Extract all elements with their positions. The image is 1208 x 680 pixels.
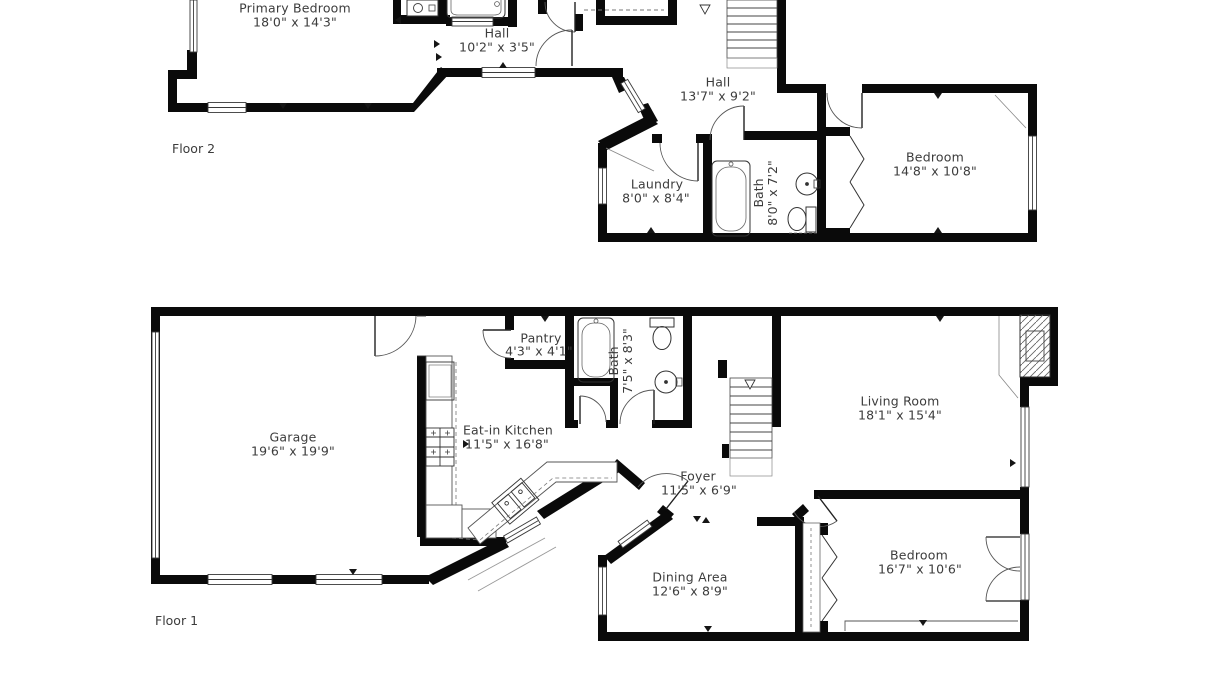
stairs-down-icon [730, 378, 772, 476]
bathroom-vanity-sink-icon [407, 0, 438, 16]
window [208, 103, 246, 113]
room-label-bath-floor2: Bath 8'0" x 7'2" [752, 160, 780, 226]
room-dims-bedroom-floor2: 14'8" x 10'8" [893, 165, 977, 178]
room-dims-garage: 19'6" x 19'9" [251, 445, 335, 458]
room-label-hall-main: Hall [706, 76, 731, 89]
window [1029, 136, 1037, 210]
door [620, 390, 654, 424]
window [482, 68, 535, 78]
window [190, 0, 197, 52]
window [316, 575, 382, 585]
window [1021, 407, 1029, 487]
kitchen-peninsula-counter [468, 462, 617, 544]
door [710, 106, 744, 140]
floor1-label: Floor 1 [155, 613, 198, 628]
window [599, 168, 607, 204]
bathtub-icon [447, 0, 505, 18]
floor1-plan [151, 307, 1058, 641]
toilet-icon [788, 207, 817, 233]
base-cabinet [426, 505, 462, 538]
bathtub-icon [712, 161, 750, 236]
bifold-closet-door [850, 136, 864, 228]
floor2-doors [536, 2, 864, 228]
hall-closet [803, 523, 820, 632]
door [375, 316, 416, 356]
room-label-foyer: Foyer [680, 470, 716, 483]
door [545, 2, 575, 32]
window [599, 567, 607, 615]
stairs-up-icon [700, 0, 777, 68]
room-dims-hall-main: 13'7" x 9'2" [680, 90, 756, 103]
room-label-laundry: Laundry [631, 178, 683, 191]
room-dims-foyer: 11'5" x 6'9" [661, 484, 737, 497]
laundry-shelf-line [606, 148, 654, 171]
stove-icon [426, 428, 454, 466]
door [536, 30, 572, 66]
window [152, 332, 159, 558]
room-label-hall-upper: Hall [485, 27, 510, 40]
room-dims: 7'5" x 8'3" [621, 328, 635, 394]
room-dims-kitchen: 11'5" x 16'8" [465, 438, 549, 451]
door [580, 396, 606, 424]
floorplan-drawing [0, 0, 1208, 680]
ceiling-break-line [995, 95, 1026, 128]
toilet-icon [650, 318, 674, 350]
window [1021, 534, 1029, 600]
floor2-markers [279, 16, 942, 233]
room-label-primary-bedroom: Primary Bedroom [239, 2, 351, 15]
room-dims-hall-upper: 10'2" x 3'5" [459, 41, 535, 54]
room-label-bath-floor1: Bath 7'5" x 8'3" [607, 328, 635, 394]
floor2-plan [168, 0, 1037, 242]
door [827, 93, 862, 128]
room-dims-living-room: 18'1" x 15'4" [858, 409, 942, 422]
window [504, 517, 541, 543]
floor2-label: Floor 2 [172, 141, 215, 156]
room-dims-bedroom-floor1: 16'7" x 10'6" [878, 563, 962, 576]
room-label-bedroom-floor1: Bedroom [890, 549, 948, 562]
door [660, 143, 698, 181]
floorplan-canvas: Primary Bedroom 18'0" x 14'3" Hall 10'2"… [0, 0, 1208, 680]
room-dims-pantry: 4'3" x 4'1" [505, 345, 573, 358]
room-label-living-room: Living Room [861, 395, 940, 408]
room-dims: 8'0" x 7'2" [766, 160, 780, 226]
room-name: Bath [607, 328, 621, 394]
room-dims-laundry: 8'0" x 8'4" [622, 192, 690, 205]
window [208, 575, 272, 585]
french-doors [986, 537, 1020, 601]
room-label-kitchen: Eat-in Kitchen [463, 424, 553, 437]
room-label-bedroom-floor2: Bedroom [906, 151, 964, 164]
window-sill-line [845, 621, 1018, 631]
window [621, 79, 645, 112]
sink-icon [655, 371, 682, 393]
sink-icon [796, 173, 820, 195]
room-name: Bath [752, 160, 766, 226]
room-label-garage: Garage [270, 431, 317, 444]
room-label-dining-area: Dining Area [652, 571, 727, 584]
bifold-closet-door [822, 535, 837, 621]
floor2-walls [168, 0, 1037, 242]
room-dims-primary-bedroom: 18'0" x 14'3" [253, 16, 337, 29]
room-dims-dining-area: 12'6" x 8'9" [652, 585, 728, 598]
